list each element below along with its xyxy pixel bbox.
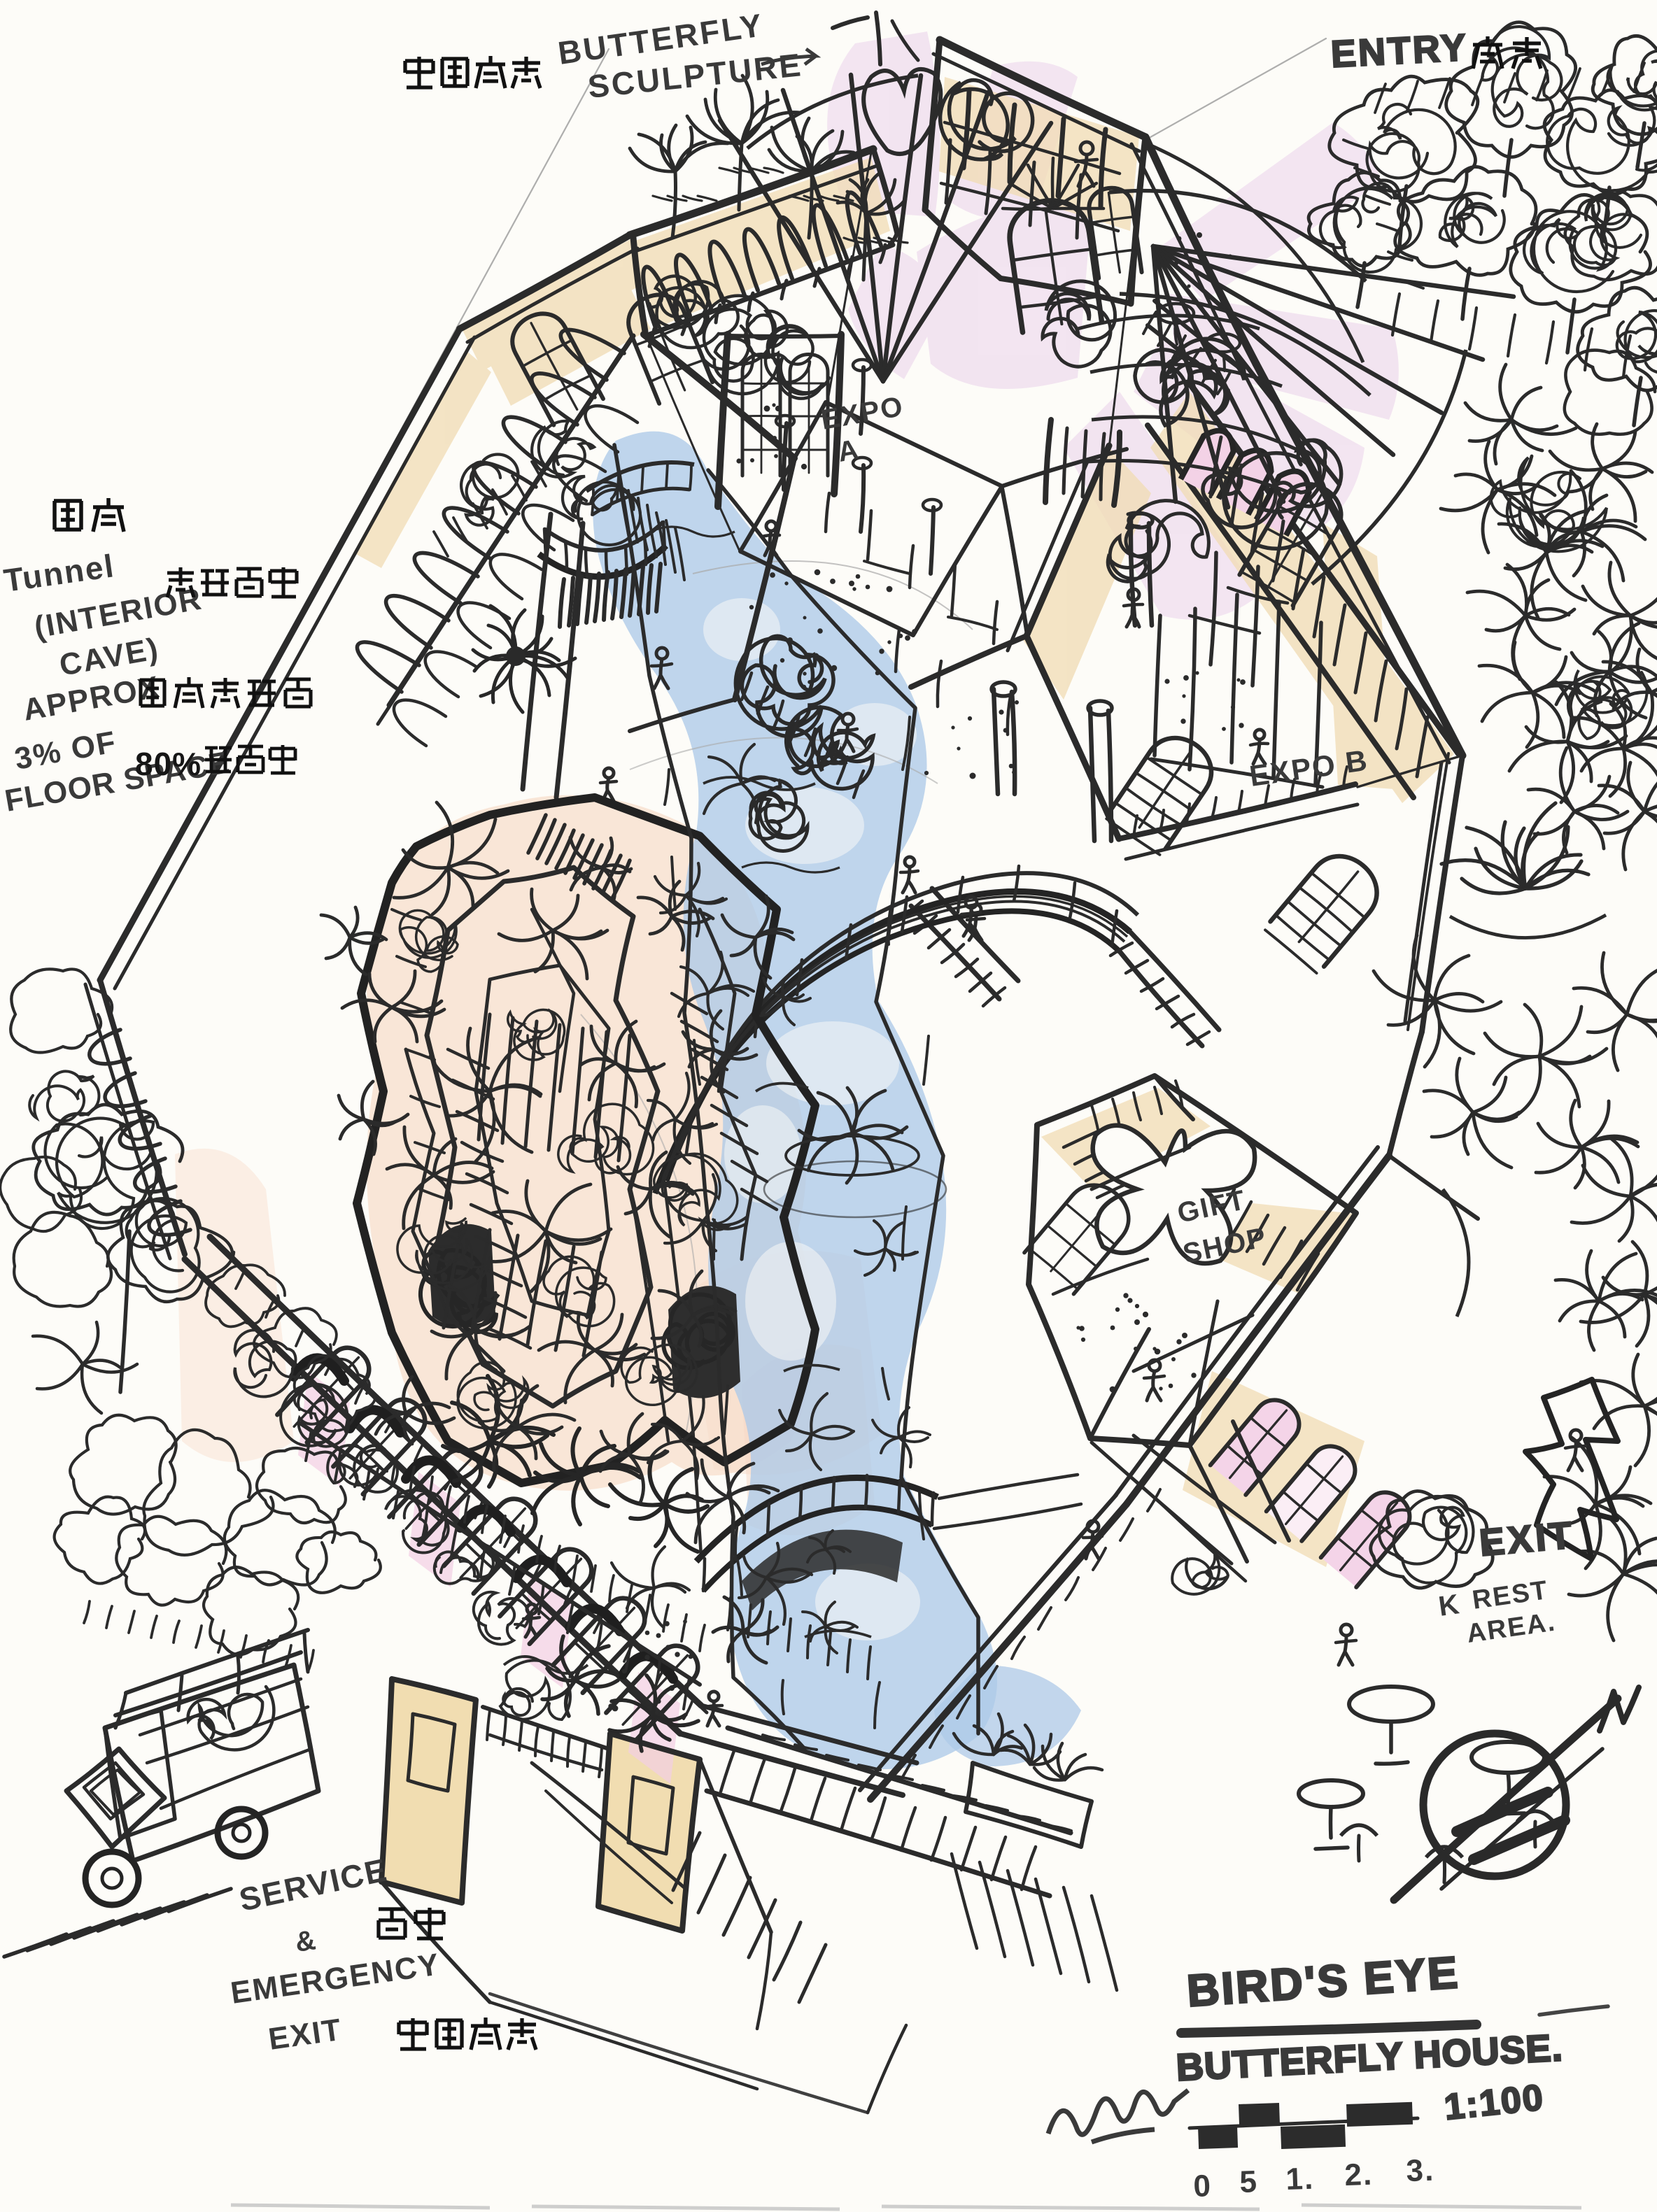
svg-text:2.: 2. — [1344, 2157, 1374, 2192]
svg-text:80%: 80% — [135, 746, 202, 782]
svg-text:1.: 1. — [1285, 2162, 1315, 2197]
svg-text:ENTRY: ENTRY — [1330, 27, 1469, 76]
svg-text:5: 5 — [1239, 2164, 1259, 2199]
svg-text:K: K — [1437, 1589, 1462, 1622]
svg-text:0: 0 — [1193, 2169, 1213, 2204]
svg-text:&: & — [293, 1924, 319, 1958]
svg-text:3.: 3. — [1406, 2153, 1435, 2188]
svg-text:EXIT: EXIT — [1478, 1514, 1577, 1564]
